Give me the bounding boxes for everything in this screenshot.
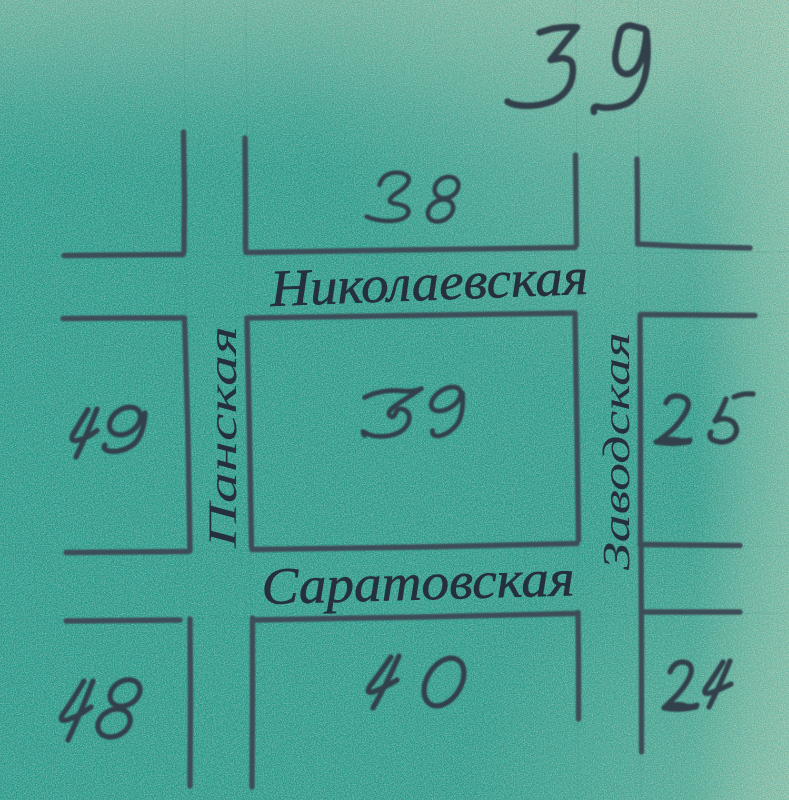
svg-text:Панская: Панская — [200, 326, 245, 550]
svg-text:Саратовская: Саратовская — [261, 550, 575, 616]
svg-text:Заводская: Заводская — [596, 332, 638, 570]
